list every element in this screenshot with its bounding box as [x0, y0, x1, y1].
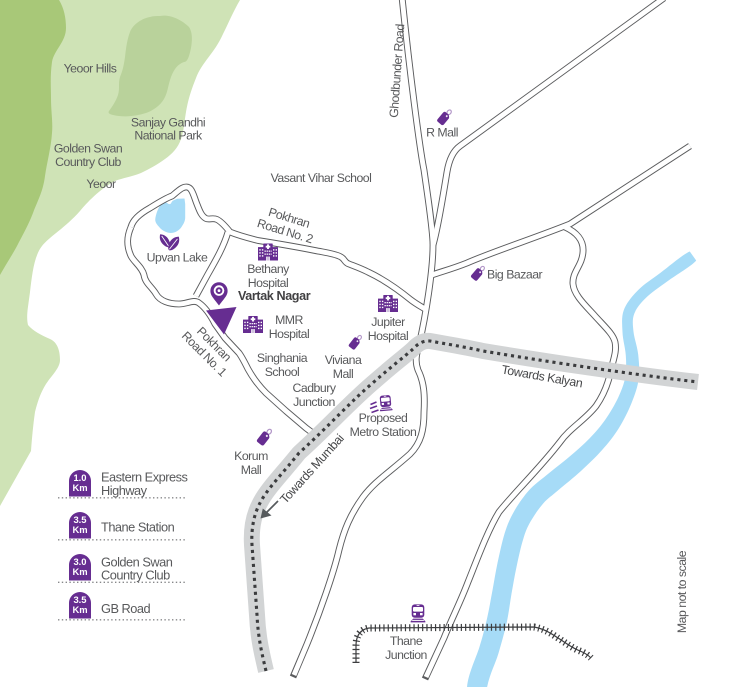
- svg-text:Hospital: Hospital: [248, 276, 288, 290]
- svg-text:Hospital: Hospital: [368, 329, 408, 343]
- svg-text:Map not to scale: Map not to scale: [675, 550, 689, 633]
- svg-text:Km: Km: [72, 566, 87, 577]
- svg-text:Upvan Lake: Upvan Lake: [147, 251, 208, 265]
- svg-text:MMR: MMR: [275, 313, 303, 327]
- svg-text:Golden Swan: Golden Swan: [54, 142, 123, 156]
- svg-text:Jupiter: Jupiter: [371, 315, 405, 329]
- svg-text:Singhania: Singhania: [257, 351, 308, 365]
- svg-text:Proposed: Proposed: [359, 411, 408, 425]
- svg-text:Km: Km: [72, 604, 87, 615]
- svg-text:GB Road: GB Road: [101, 601, 151, 616]
- svg-text:Bethany: Bethany: [247, 262, 290, 276]
- svg-text:National Park: National Park: [134, 129, 203, 143]
- svg-text:Mall: Mall: [333, 367, 354, 381]
- svg-text:Thane Station: Thane Station: [101, 520, 175, 535]
- svg-text:Km: Km: [72, 524, 87, 535]
- svg-text:Mall: Mall: [241, 463, 262, 477]
- svg-text:Metro Station: Metro Station: [350, 425, 417, 439]
- svg-text:Junction: Junction: [293, 395, 335, 409]
- svg-text:Km: Km: [72, 482, 87, 493]
- svg-text:Yeoor Hills: Yeoor Hills: [64, 62, 117, 76]
- svg-text:Country Club: Country Club: [101, 568, 170, 583]
- svg-text:Korum: Korum: [234, 449, 268, 463]
- svg-text:Big Bazaar: Big Bazaar: [487, 268, 543, 282]
- svg-text:Sanjay Gandhi: Sanjay Gandhi: [131, 116, 205, 130]
- svg-text:Vartak Nagar: Vartak Nagar: [238, 289, 311, 303]
- svg-text:Vasant Vihar School: Vasant Vihar School: [271, 171, 372, 185]
- svg-text:Country Club: Country Club: [55, 155, 121, 169]
- svg-text:Highway: Highway: [101, 483, 148, 498]
- svg-text:School: School: [265, 365, 300, 379]
- svg-text:Hospital: Hospital: [269, 327, 309, 341]
- svg-text:Cadbury: Cadbury: [293, 381, 337, 395]
- svg-text:Yeoor: Yeoor: [86, 177, 116, 191]
- svg-text:Junction: Junction: [385, 648, 427, 662]
- svg-text:Viviana: Viviana: [325, 353, 362, 367]
- svg-text:R Mall: R Mall: [426, 126, 458, 140]
- svg-text:Thane: Thane: [390, 634, 423, 648]
